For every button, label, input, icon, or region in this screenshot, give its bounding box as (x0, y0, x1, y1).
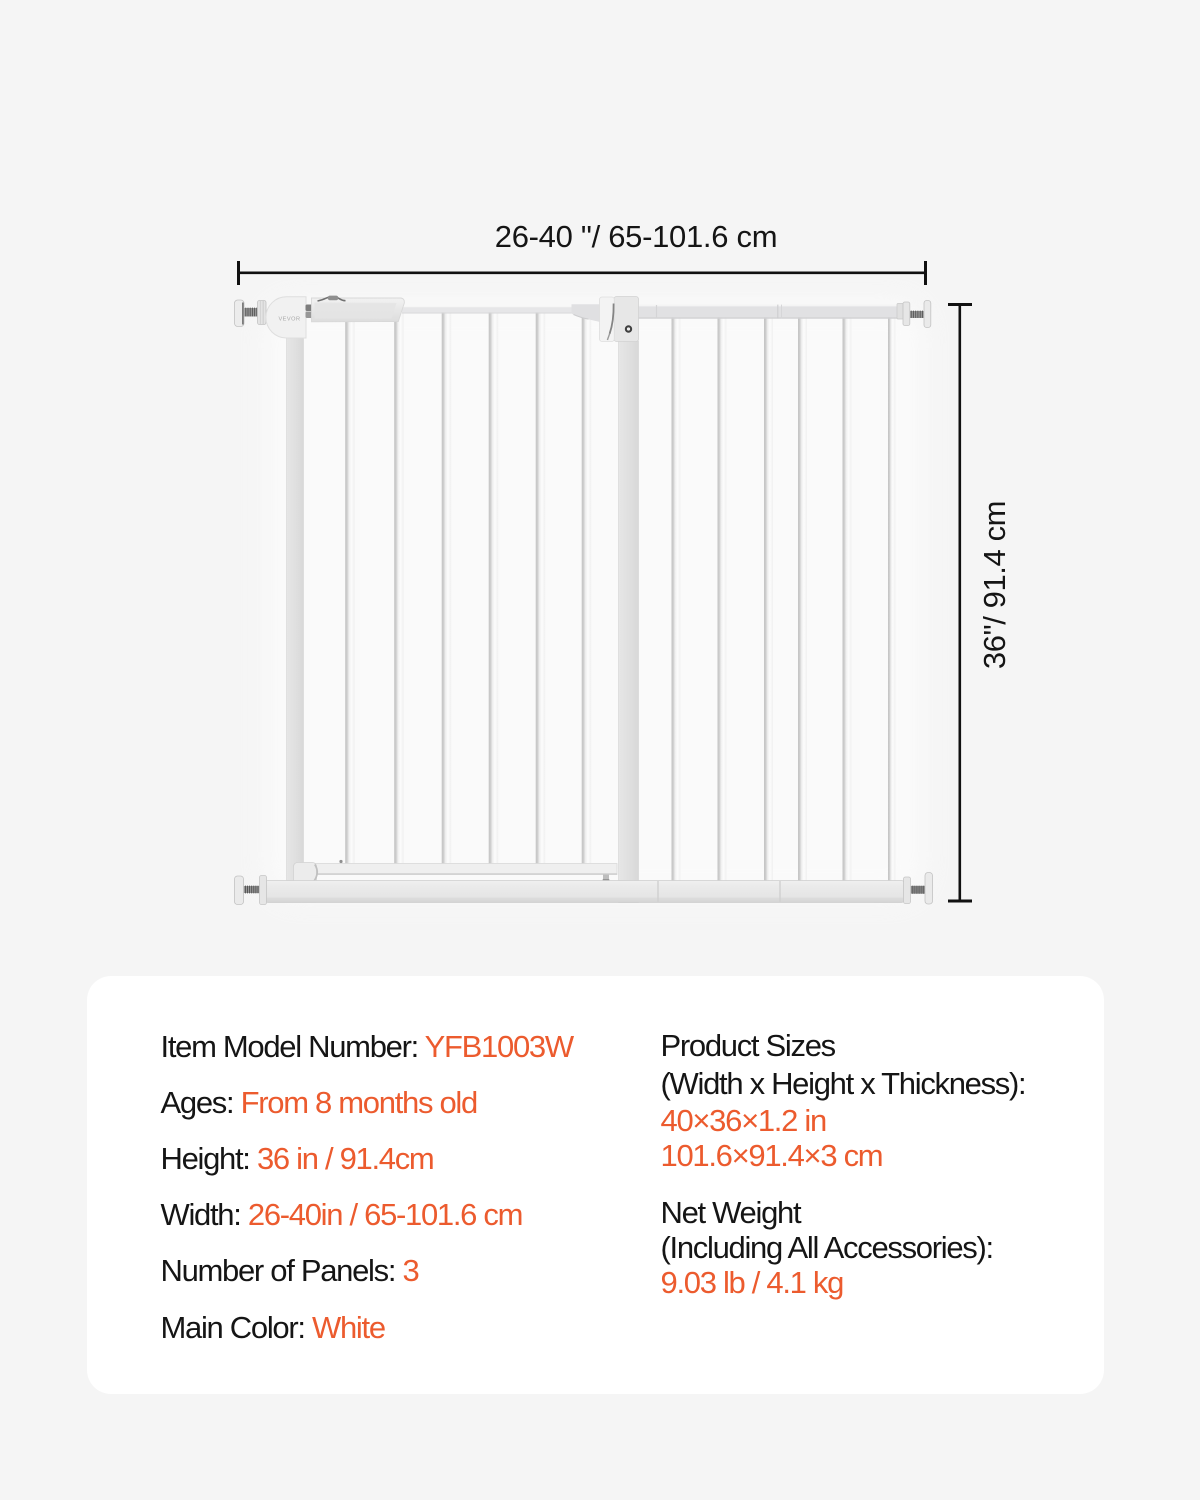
svg-text:VEVOR: VEVOR (278, 317, 300, 323)
